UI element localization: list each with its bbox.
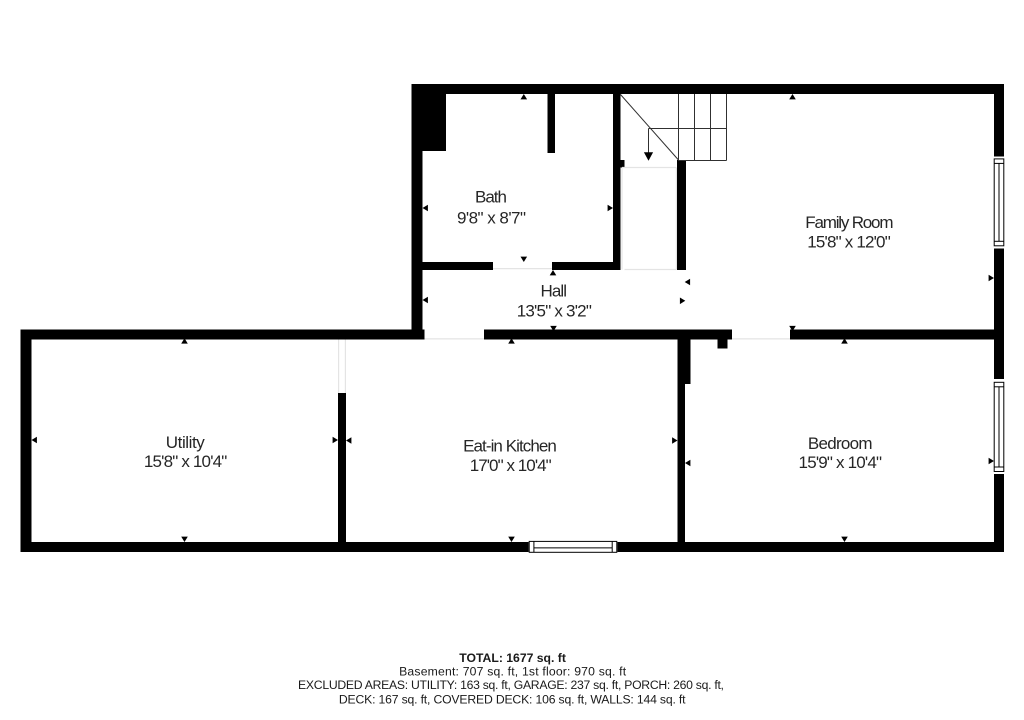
svg-text:15'8" x 12'0": 15'8" x 12'0" bbox=[807, 232, 891, 251]
svg-text:DECK: 167 sq. ft, COVERED DECK: DECK: 167 sq. ft, COVERED DECK: 106 sq. … bbox=[339, 693, 686, 707]
svg-text:Family Room: Family Room bbox=[805, 213, 893, 232]
svg-text:TOTAL: 1677 sq. ft: TOTAL: 1677 sq. ft bbox=[459, 651, 566, 665]
svg-text:15'8" x 10'4": 15'8" x 10'4" bbox=[144, 452, 227, 471]
svg-text:Hall: Hall bbox=[541, 282, 568, 301]
svg-text:Eat-in Kitchen: Eat-in Kitchen bbox=[463, 437, 557, 456]
svg-text:Bedroom: Bedroom bbox=[808, 434, 873, 453]
svg-text:17'0" x 10'4": 17'0" x 10'4" bbox=[470, 456, 552, 475]
svg-text:9'8" x 8'7": 9'8" x 8'7" bbox=[457, 208, 526, 227]
svg-text:15'9" x 10'4": 15'9" x 10'4" bbox=[799, 453, 883, 472]
svg-text:13'5" x 3'2": 13'5" x 3'2" bbox=[517, 302, 592, 321]
svg-text:EXCLUDED AREAS: UTILITY: 163 s: EXCLUDED AREAS: UTILITY: 163 sq. ft, GAR… bbox=[298, 678, 724, 692]
svg-text:Utility: Utility bbox=[166, 433, 206, 452]
svg-text:Basement: 707 sq. ft, 1st floo: Basement: 707 sq. ft, 1st floor: 970 sq.… bbox=[399, 665, 627, 679]
svg-text:Bath: Bath bbox=[475, 187, 507, 206]
